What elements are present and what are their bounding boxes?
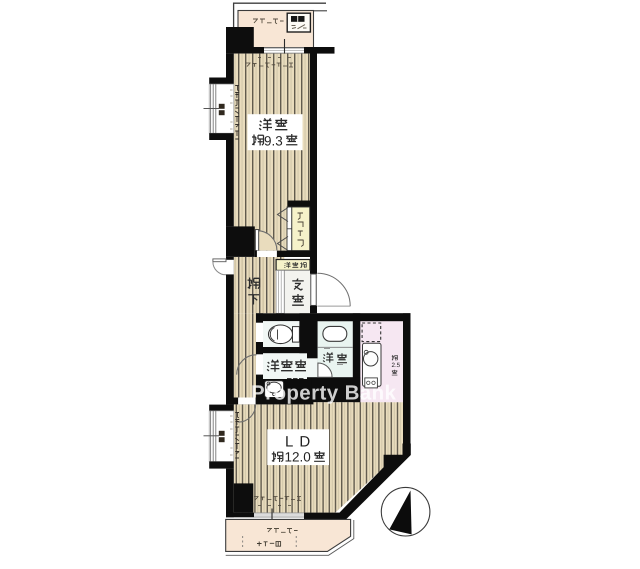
svg-text:12.0: 12.0 bbox=[285, 450, 311, 465]
svg-text:9.3: 9.3 bbox=[264, 134, 283, 149]
svg-text:2.5: 2.5 bbox=[392, 362, 401, 369]
svg-text:Property Bank: Property Bank bbox=[251, 382, 397, 405]
svg-text:LD: LD bbox=[285, 434, 316, 451]
